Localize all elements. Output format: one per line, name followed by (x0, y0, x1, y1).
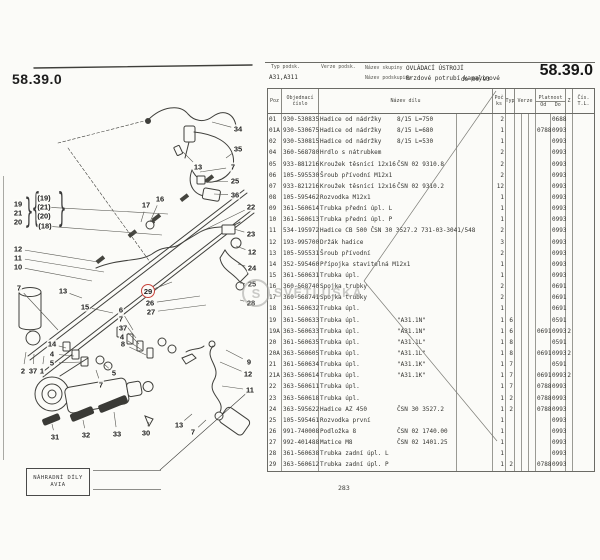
part-name: Trubka úpl. (320, 350, 360, 357)
cell-tl (573, 159, 594, 170)
part-name: Trubka úpl. (320, 272, 360, 279)
cell-verze-2 (522, 337, 529, 348)
cell-quantity: 2 (493, 292, 506, 303)
cell-typ: 6 (506, 326, 515, 337)
table-row: 21A 363-560614 Trubka úpl."A31.1K" 1 7 0… (268, 370, 594, 381)
cell-valid-from (536, 426, 551, 437)
callout-number: (19) (36, 194, 51, 203)
cell-z (566, 437, 573, 448)
callout-number: 7 (16, 284, 22, 293)
callout-number: 27 (146, 308, 156, 317)
cell-verze-1 (515, 448, 522, 459)
cell-verze-1 (515, 326, 522, 337)
cell-valid-from (536, 214, 551, 225)
cell-valid-from: 0788 (536, 393, 551, 404)
callout-number: 25 (247, 280, 257, 289)
cell-quantity: 1 (493, 381, 506, 392)
table-row: 12 193-995700 Držák hadice 3 0993 (268, 237, 594, 248)
cell-part-name: Trubka přední úpl. L (319, 203, 457, 214)
cell-part-name: Trubka úpl. (319, 270, 457, 281)
cell-verze-3 (529, 426, 536, 437)
cell-empty (457, 114, 493, 125)
cell-quantity: 1 (493, 214, 506, 225)
cell-order-number: 363-560618 (282, 393, 319, 404)
cell-part-name: Hadice od nádržky8/15 L=750 (319, 114, 457, 125)
cell-verze-2 (522, 348, 529, 359)
parts-table-page: Typ podsk. A31,A311 Verze podsk. Název s… (265, 62, 595, 482)
cell-order-number: 193-995700 (282, 237, 319, 248)
callout-number: 22 (246, 203, 256, 212)
spare-parts-stamp: NÁHRADNÍ DÍLY AVIA (26, 468, 90, 496)
cell-typ (506, 203, 515, 214)
cell-quantity: 1 (493, 326, 506, 337)
cell-order-number: 360-568780 (282, 147, 319, 158)
stamp-line2: AVIA (50, 482, 65, 489)
cell-verze-1 (515, 170, 522, 181)
cell-verze-2 (522, 259, 529, 270)
cell-part-name: Trubka úpl."A31.1L" (319, 337, 457, 348)
cell-order-number: 992-401488 (282, 437, 319, 448)
cell-z (566, 192, 573, 203)
cell-valid-from (536, 259, 551, 270)
cell-typ (506, 192, 515, 203)
cell-valid-from (536, 337, 551, 348)
cell-verze-2 (522, 326, 529, 337)
cell-verze-1 (515, 125, 522, 136)
part-name: Trubka úpl. (320, 361, 360, 368)
cell-part-name: Rozvodka M12x1 (319, 192, 457, 203)
cell-tl (573, 337, 594, 348)
cell-verze-1 (515, 259, 522, 270)
callout-number: 9 (246, 358, 252, 367)
cell-quantity: 2 (493, 147, 506, 158)
callout-number: 24 (247, 264, 257, 273)
cell-empty (457, 192, 493, 203)
table-row: 15 361-560631 Trubka úpl. 1 0993 (268, 270, 594, 281)
callout-number: 7 (118, 315, 124, 324)
table-row: 26 991-740008 Podložka 8ČSN 02 1740.00 1… (268, 426, 594, 437)
cell-valid-from (536, 159, 551, 170)
diagram-page: 58.39.0 (0, 0, 262, 560)
cell-order-number: 933-821216 (282, 181, 319, 192)
cell-tl (573, 426, 594, 437)
cell-order-number: 363-560633 (282, 326, 319, 337)
table-row: 22 363-560611 Trubka úpl. 1 7 0788 0993 (268, 381, 594, 392)
part-name: Trubka úpl. (320, 383, 360, 390)
cell-quantity: 2 (493, 170, 506, 181)
cell-valid-to: 0993 (551, 248, 566, 259)
cell-verze-1 (515, 359, 522, 370)
callout-number: 12 (243, 370, 253, 379)
cell-verze-3 (529, 303, 536, 314)
cell-empty (457, 348, 493, 359)
callout-number: 23 (246, 230, 256, 239)
cell-z (566, 270, 573, 281)
callout-number: 34 (233, 125, 243, 134)
cell-typ (506, 181, 515, 192)
cell-tl (573, 393, 594, 404)
col-ks: Počks (493, 89, 506, 113)
cell-poz: 04 (268, 147, 282, 158)
cell-verze-2 (522, 448, 529, 459)
part-name: Hrdlo s nátrubkem (320, 149, 381, 156)
cell-verze-3 (529, 147, 536, 158)
cell-order-number: 105-595462 (282, 192, 319, 203)
cell-verze-3 (529, 381, 536, 392)
cell-verze-2 (522, 393, 529, 404)
cell-verze-1 (515, 459, 522, 470)
cell-verze-3 (529, 237, 536, 248)
col-verze: Verze (515, 89, 536, 113)
cell-verze-3 (529, 181, 536, 192)
cell-valid-to: 0993 (551, 181, 566, 192)
part-name: Přípojka stavitelná M12x1 (320, 261, 410, 268)
cell-verze-1 (515, 426, 522, 437)
cell-tl (573, 114, 594, 125)
callout-number: (21) (36, 203, 51, 212)
callout-number: 16 (155, 195, 165, 204)
cell-tl (573, 125, 594, 136)
table-row: 14 352-595460 Přípojka stavitelná M12x1 … (268, 259, 594, 270)
cell-quantity: 12 (493, 181, 506, 192)
cell-typ (506, 159, 515, 170)
cell-poz: 16 (268, 281, 282, 292)
cell-valid-to: 0993 (551, 326, 566, 337)
cell-part-name: Trubka přední úpl. P (319, 214, 457, 225)
callout-number: 7 (230, 163, 236, 172)
part-name: Hadice od nádržky (320, 127, 381, 134)
cell-verze-3 (529, 214, 536, 225)
cell-z (566, 136, 573, 147)
cell-order-number: 105-595530 (282, 170, 319, 181)
cell-poz: 05 (268, 159, 282, 170)
part-name: Kroužek těsnící 12x16 (320, 161, 396, 168)
table-row: 02 930-530815 Hadice od nádržky8/15 L=53… (268, 136, 594, 147)
cell-typ (506, 259, 515, 270)
cell-empty (457, 415, 493, 426)
callout-number: 12 (247, 248, 257, 257)
cell-typ (506, 147, 515, 158)
cell-part-name: Spojka trubky (319, 281, 457, 292)
table-row: 13 105-595531 Šroub přívodní 2 0993 (268, 248, 594, 259)
cell-verze-3 (529, 159, 536, 170)
cell-valid-to: 0993 (551, 147, 566, 158)
part-name: Spojka trubky (320, 283, 367, 290)
cell-verze-2 (522, 292, 529, 303)
cell-part-name: Trubka úpl."A31.1N" (319, 326, 457, 337)
cell-z (566, 281, 573, 292)
cell-valid-to: 0993 (551, 348, 566, 359)
cell-tl (573, 281, 594, 292)
table-row: 24 363-595622 Hadice AZ 450ČSN 30 3527.2… (268, 404, 594, 415)
cell-empty (457, 270, 493, 281)
cell-valid-to: 0993 (551, 125, 566, 136)
cell-valid-from: 0691 (536, 370, 551, 381)
cell-poz: 07 (268, 181, 282, 192)
cell-tl (573, 248, 594, 259)
cell-z (566, 248, 573, 259)
cell-part-name: Držák hadice (319, 237, 457, 248)
callout-number: 17 (141, 201, 151, 210)
cell-quantity: 2 (493, 248, 506, 259)
cell-empty (457, 125, 493, 136)
cell-typ (506, 303, 515, 314)
nazev-skupiny-label: Název skupiny (365, 66, 403, 71)
callout-number: 6 (118, 306, 124, 315)
part-note: "A31.1K" (397, 359, 426, 370)
cell-valid-from (536, 114, 551, 125)
col-nazev: Název dílu (319, 89, 493, 113)
cell-valid-to: 0993 (551, 136, 566, 147)
cell-tl (573, 225, 594, 236)
cell-verze-2 (522, 303, 529, 314)
table-row: 01A 930-530675 Hadice od nádržky8/15 L=6… (268, 125, 594, 136)
callout-number: 32 (81, 431, 91, 440)
cell-z (566, 448, 573, 459)
cell-order-number: 105-595461 (282, 415, 319, 426)
stamp-rule-top (93, 470, 161, 471)
cell-part-name: Hrdlo s nátrubkem (319, 147, 457, 158)
cell-z (566, 259, 573, 270)
cell-verze-2 (522, 381, 529, 392)
cell-quantity: 1 (493, 303, 506, 314)
part-name: Trubka přední úpl. L (320, 205, 392, 212)
cell-verze-1 (515, 136, 522, 147)
cell-verze-1 (515, 237, 522, 248)
callout-number: 26 (145, 299, 155, 308)
cell-part-name: Trubka úpl."A31.1K" (319, 370, 457, 381)
part-note: ČSN 02 9310.2 (397, 181, 444, 192)
cell-z (566, 303, 573, 314)
cell-tl (573, 459, 594, 470)
verze-podsk-label: Verze podsk. (321, 65, 356, 70)
part-name: Trubka přední úpl. P (320, 216, 392, 223)
cell-verze-1 (515, 114, 522, 125)
cell-valid-to: 0691 (551, 281, 566, 292)
cell-poz: 11 (268, 225, 282, 236)
cell-z (566, 404, 573, 415)
callout-number: 1 (39, 367, 45, 376)
part-note: ČSN 02 1401.25 (397, 437, 448, 448)
cell-verze-3 (529, 248, 536, 259)
part-name: Trubka úpl. (320, 372, 360, 379)
cell-z (566, 125, 573, 136)
table-row: 17 360-568741 Spojka trubky 2 0691 (268, 292, 594, 303)
callout-number: 25 (230, 177, 240, 186)
cell-valid-to: 0993 (551, 192, 566, 203)
table-row: 19A 363-560633 Trubka úpl."A31.1N" 1 6 0… (268, 326, 594, 337)
cell-quantity: 1 (493, 192, 506, 203)
cell-valid-from (536, 448, 551, 459)
cell-part-name: Kroužek těsnící 12x16ČSN 02 9310.8 (319, 159, 457, 170)
cell-part-name: Hadice od nádržky8/15 L=530 (319, 136, 457, 147)
cell-poz: 26 (268, 426, 282, 437)
nazev-podskupiny-label: Název podskupiny (365, 76, 411, 81)
cell-order-number: 360-568741 (282, 292, 319, 303)
cell-verze-2 (522, 315, 529, 326)
cell-typ (506, 248, 515, 259)
cell-tl (573, 348, 594, 359)
cell-valid-to: 0993 (551, 415, 566, 426)
cell-valid-from (536, 315, 551, 326)
col-z: Z (566, 89, 573, 113)
cell-verze-2 (522, 214, 529, 225)
cell-valid-from (536, 181, 551, 192)
cell-empty (457, 248, 493, 259)
part-note: "A31.1L" (397, 348, 426, 359)
cell-tl (573, 303, 594, 314)
cell-part-name: Trubka úpl. (319, 303, 457, 314)
cell-valid-from: 0788 (536, 125, 551, 136)
cell-part-name: Šroub přívodní M12x1 (319, 170, 457, 181)
cell-tl (573, 147, 594, 158)
callout-number: 20 (13, 218, 23, 227)
cell-verze-3 (529, 114, 536, 125)
cell-quantity: 1 (493, 393, 506, 404)
cell-poz: 20 (268, 337, 282, 348)
callout-number-highlighted: 29 (141, 284, 155, 298)
table-row: 23 363-560618 Trubka úpl. 1 2 0788 0993 (268, 393, 594, 404)
cell-order-number: 361-560638 (282, 448, 319, 459)
cell-verze-1 (515, 270, 522, 281)
cell-valid-from: 0788 (536, 404, 551, 415)
part-name: Šroub přívodní (320, 250, 371, 257)
cell-z (566, 459, 573, 470)
cell-empty (457, 359, 493, 370)
cell-valid-to: 0993 (551, 203, 566, 214)
cell-verze-3 (529, 393, 536, 404)
part-name: Šroub přívodní M12x1 (320, 172, 392, 179)
table-row: 06 105-595530 Šroub přívodní M12x1 2 099… (268, 170, 594, 181)
callout-number: 12 (13, 245, 23, 254)
section-code-right: 58.39.0 (540, 62, 593, 80)
cell-order-number: 363-560611 (282, 381, 319, 392)
table-row: 10 361-560613 Trubka přední úpl. P 1 099… (268, 214, 594, 225)
cell-typ (506, 281, 515, 292)
cell-tl (573, 359, 594, 370)
cell-verze-3 (529, 337, 536, 348)
cell-valid-from (536, 225, 551, 236)
cell-tl (573, 270, 594, 281)
cell-z (566, 181, 573, 192)
cell-verze-1 (515, 315, 522, 326)
cell-poz: 10 (268, 214, 282, 225)
table-row: 08 105-595462 Rozvodka M12x1 1 0993 (268, 192, 594, 203)
cell-part-name: Trubka úpl."A31.1K" (319, 359, 457, 370)
cell-part-name: Trubka úpl. (319, 393, 457, 404)
cell-empty (457, 281, 493, 292)
cell-typ: 7 (506, 359, 515, 370)
cell-verze-3 (529, 359, 536, 370)
callout-number: 13 (174, 421, 184, 430)
cell-verze-2 (522, 237, 529, 248)
cell-part-name: Trubka úpl."A31.1N" (319, 315, 457, 326)
cell-verze-3 (529, 459, 536, 470)
cell-valid-to: 0993 (551, 270, 566, 281)
cell-tl (573, 292, 594, 303)
cell-tl (573, 404, 594, 415)
table-row: 07 933-821216 Kroužek těsnící 12x16ČSN 0… (268, 181, 594, 192)
cell-part-name: Přípojka stavitelná M12x1 (319, 259, 457, 270)
cell-verze-2 (522, 281, 529, 292)
cell-quantity: 1 (493, 370, 506, 381)
cell-typ (506, 426, 515, 437)
cell-verze-1 (515, 225, 522, 236)
table-row: 20A 363-560605 Trubka úpl."A31.1L" 1 8 0… (268, 348, 594, 359)
cell-valid-to: 0993 (551, 437, 566, 448)
cell-verze-1 (515, 381, 522, 392)
cell-empty (457, 404, 493, 415)
table-row: 18 361-560632 Trubka úpl. 1 0691 (268, 303, 594, 314)
cell-quantity: 1 (493, 203, 506, 214)
callout-number: 28 (246, 299, 256, 308)
part-name: Rozvodka M12x1 (320, 194, 371, 201)
cell-valid-from (536, 415, 551, 426)
part-name: Hadice CB 500 ČSN 30 3527.2 731-03-3041/… (320, 227, 475, 234)
cell-valid-from (536, 203, 551, 214)
cell-verze-3 (529, 125, 536, 136)
cell-empty (457, 170, 493, 181)
cell-poz: 02 (268, 136, 282, 147)
cell-poz: 27 (268, 437, 282, 448)
cell-order-number: 363-560612 (282, 459, 319, 470)
part-note: 8/15 L=680 (397, 125, 433, 136)
cell-empty (457, 259, 493, 270)
callout-number: 13 (58, 287, 68, 296)
cell-typ: 2 (506, 459, 515, 470)
cell-poz: 19 (268, 315, 282, 326)
cell-poz: 20A (268, 348, 282, 359)
cell-valid-from: 0691 (536, 326, 551, 337)
cell-verze-3 (529, 404, 536, 415)
cell-tl (573, 370, 594, 381)
cell-verze-1 (515, 393, 522, 404)
cell-empty (457, 203, 493, 214)
cell-verze-3 (529, 415, 536, 426)
cell-z (566, 214, 573, 225)
cell-verze-3 (529, 326, 536, 337)
cell-verze-1 (515, 415, 522, 426)
cell-empty (457, 337, 493, 348)
callout-number: 21 (13, 209, 23, 218)
table-info-header: Typ podsk. A31,A311 Verze podsk. Název s… (265, 62, 595, 89)
cell-part-name: Hadice CB 500 ČSN 30 3527.2 731-03-3041/… (319, 225, 457, 236)
part-note: 8/15 L=750 (397, 114, 433, 125)
col-cislo: Objednacíčíslo (282, 89, 319, 113)
cell-quantity: 1 (493, 337, 506, 348)
cell-verze-1 (515, 303, 522, 314)
callout-number: 37 (28, 367, 38, 376)
cell-verze-3 (529, 292, 536, 303)
cell-verze-2 (522, 159, 529, 170)
typ-podsk-label: Typ podsk. (271, 65, 300, 70)
cell-valid-to: 0993 (551, 159, 566, 170)
cell-quantity: 3 (493, 237, 506, 248)
cell-verze-1 (515, 370, 522, 381)
cell-order-number: 363-560614 (282, 370, 319, 381)
cell-verze-1 (515, 281, 522, 292)
part-note: "A31.1K" (397, 370, 426, 381)
table-row: 20 361-560635 Trubka úpl."A31.1L" 1 8 05… (268, 337, 594, 348)
cell-z (566, 315, 573, 326)
cell-quantity: 1 (493, 125, 506, 136)
cell-verze-2 (522, 370, 529, 381)
cell-tl (573, 381, 594, 392)
cell-valid-to: 0993 (551, 370, 566, 381)
table-row: 28 361-560638 Trubka zadní úpl. L 1 0993 (268, 448, 594, 459)
cell-verze-2 (522, 125, 529, 136)
cell-valid-from (536, 437, 551, 448)
